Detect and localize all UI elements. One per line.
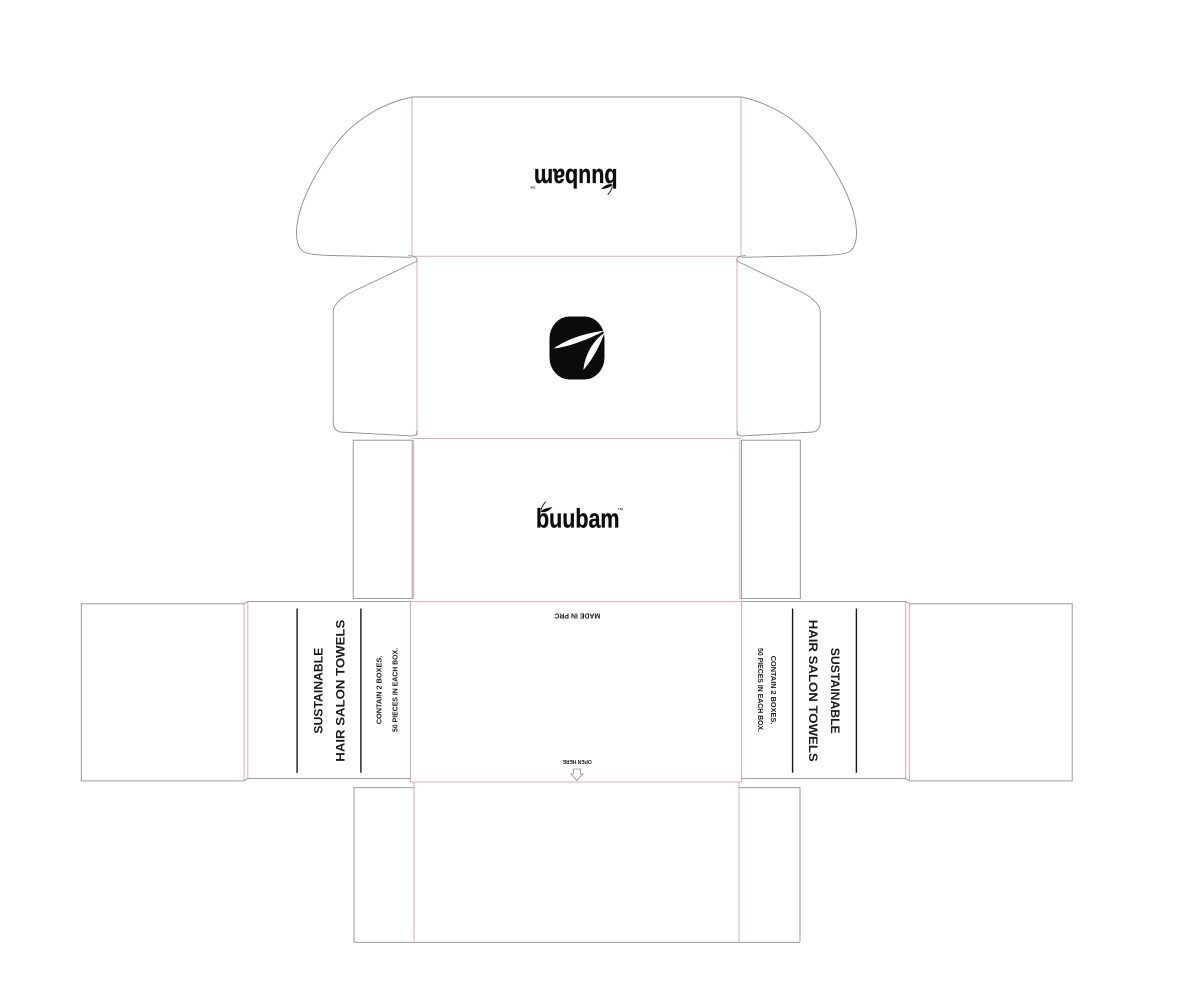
svg-text:50 PIECES IN EACH BOX.: 50 PIECES IN EACH BOX. <box>756 648 763 732</box>
svg-text:HAIR SALON TOWELS: HAIR SALON TOWELS <box>806 620 820 762</box>
svg-text:50 PIECES IN EACH BOX.: 50 PIECES IN EACH BOX. <box>392 648 399 732</box>
svg-text:CONTAIN 2 BOXES.: CONTAIN 2 BOXES. <box>377 656 384 725</box>
svg-text:HAIR SALON TOWELS: HAIR SALON TOWELS <box>333 620 347 762</box>
svg-text:OPEN HERE: OPEN HERE <box>562 758 591 764</box>
svg-text:SUSTAINABLE: SUSTAINABLE <box>311 648 325 734</box>
svg-text:SUSTAINABLE: SUSTAINABLE <box>828 648 842 734</box>
svg-text:CONTAIN 2 BOXES.: CONTAIN 2 BOXES. <box>769 656 776 725</box>
svg-text:MADE IN PRC: MADE IN PRC <box>554 611 600 620</box>
